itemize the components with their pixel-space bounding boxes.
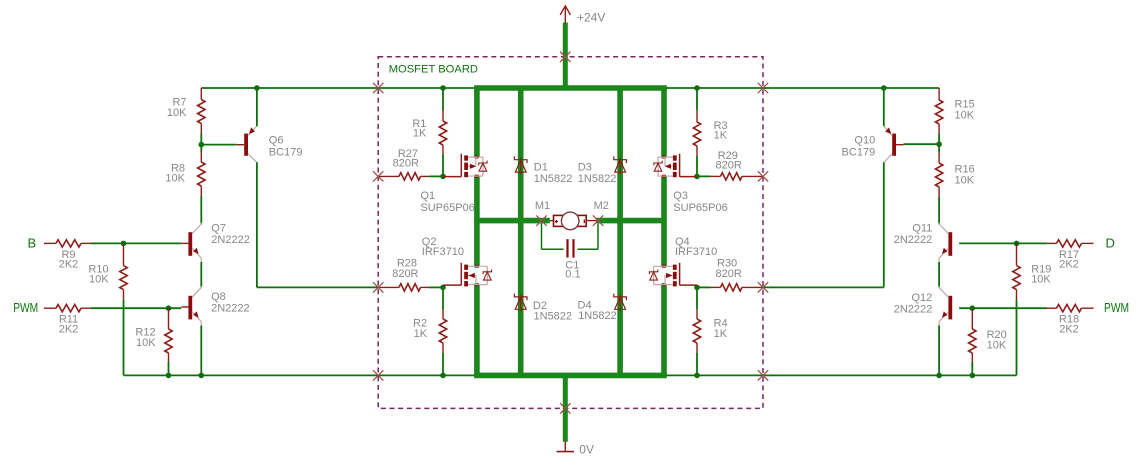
svg-text:10K: 10K [955, 175, 975, 187]
svg-text:MOSFET BOARD: MOSFET BOARD [389, 64, 478, 76]
svg-text:2K2: 2K2 [1059, 323, 1079, 335]
svg-text:D: D [1106, 235, 1115, 250]
svg-text:1K: 1K [714, 328, 728, 340]
svg-text:820R: 820R [716, 268, 742, 280]
svg-text:1N5822: 1N5822 [534, 173, 573, 185]
svg-text:D1: D1 [534, 162, 548, 174]
svg-text:2K2: 2K2 [59, 323, 79, 335]
svg-text:Q3: Q3 [673, 190, 688, 202]
svg-text:820R: 820R [716, 160, 742, 172]
svg-text:M1: M1 [535, 200, 550, 212]
svg-text:0.1: 0.1 [565, 269, 580, 281]
svg-text:2K2: 2K2 [1059, 258, 1079, 270]
svg-text:+24V: +24V [577, 11, 605, 25]
svg-text:Q12: Q12 [912, 292, 933, 304]
svg-text:IRF3710: IRF3710 [422, 246, 464, 258]
svg-text:SUP65P06: SUP65P06 [420, 202, 474, 214]
svg-text:BC179: BC179 [842, 147, 876, 159]
svg-text:1K: 1K [714, 130, 728, 142]
svg-text:10K: 10K [136, 337, 156, 349]
svg-text:10K: 10K [1031, 274, 1051, 286]
svg-text:Q1: Q1 [420, 190, 435, 202]
svg-text:IRF3710: IRF3710 [675, 246, 717, 258]
svg-text:10K: 10K [955, 110, 975, 122]
svg-text:Q8: Q8 [211, 291, 226, 303]
svg-text:0V: 0V [579, 443, 594, 457]
svg-text:10K: 10K [167, 107, 187, 119]
svg-text:820R: 820R [393, 158, 419, 170]
svg-text:PWM: PWM [1104, 300, 1129, 315]
svg-text:SUP65P06: SUP65P06 [673, 202, 727, 214]
svg-text:D3: D3 [578, 162, 592, 174]
svg-text:Q6: Q6 [269, 135, 284, 147]
svg-text:PWM: PWM [13, 300, 38, 315]
svg-text:820R: 820R [392, 268, 418, 280]
svg-text:1N5822: 1N5822 [578, 310, 617, 322]
svg-text:2N2222: 2N2222 [894, 234, 933, 246]
svg-text:Q10: Q10 [854, 135, 875, 147]
svg-text:1N5822: 1N5822 [578, 173, 617, 185]
svg-text:M2: M2 [594, 200, 609, 212]
svg-text:10K: 10K [89, 274, 109, 286]
svg-text:2N2222: 2N2222 [894, 304, 933, 316]
svg-text:10K: 10K [987, 340, 1007, 352]
svg-text:2N2222: 2N2222 [211, 303, 250, 315]
svg-text:10K: 10K [165, 173, 185, 185]
svg-text:Q11: Q11 [912, 223, 932, 235]
svg-text:1K: 1K [413, 127, 427, 139]
svg-text:1K: 1K [414, 328, 428, 340]
svg-text:2N2222: 2N2222 [211, 234, 250, 246]
svg-text:Q7: Q7 [211, 223, 226, 235]
svg-text:BC179: BC179 [269, 147, 303, 159]
svg-text:2K2: 2K2 [59, 258, 79, 270]
svg-text:B: B [28, 235, 37, 250]
svg-text:1N5822: 1N5822 [534, 311, 573, 323]
